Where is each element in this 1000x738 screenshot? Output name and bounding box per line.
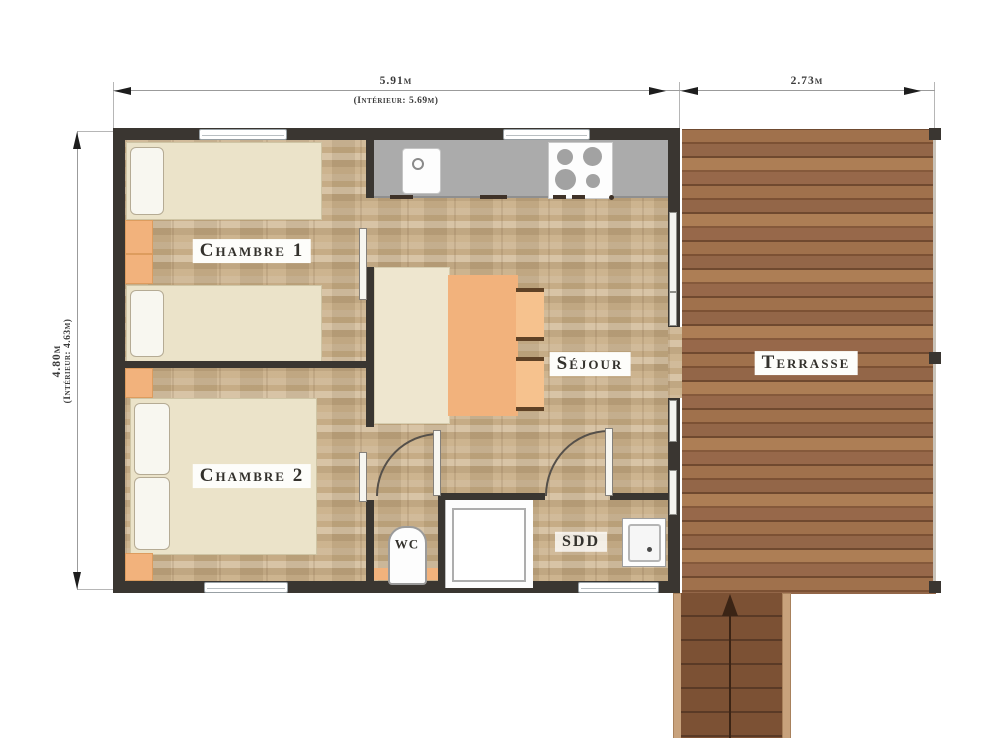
washbasin-bowl bbox=[628, 524, 661, 562]
dimension-left-height: 4.80m bbox=[51, 345, 63, 378]
railing-post bbox=[929, 352, 941, 364]
terrace-doorway-opening bbox=[668, 327, 682, 398]
room-label-chambre2: Chambre 2 bbox=[193, 464, 311, 488]
door-leaf-wc bbox=[433, 430, 441, 496]
floor-plan-canvas: 5.91m (Intérieur: 5.69m) 2.73m 4.80m (In… bbox=[0, 0, 1000, 738]
cabinet-handle bbox=[572, 195, 585, 199]
faucet-icon bbox=[412, 158, 424, 170]
extension-line bbox=[934, 82, 935, 128]
glass-pane bbox=[669, 470, 677, 515]
dimension-line-terrace bbox=[680, 90, 935, 91]
dimension-arrow-icon bbox=[73, 572, 81, 589]
door-leaf-sdd bbox=[605, 428, 613, 496]
burner-icon bbox=[583, 147, 602, 166]
nightstand bbox=[125, 368, 153, 398]
bed-pillow bbox=[130, 290, 164, 357]
partition-bedroom1-kitchen bbox=[366, 140, 374, 198]
dimension-terrace-width: 2.73m bbox=[791, 75, 824, 87]
dimension-arrow-icon bbox=[73, 132, 81, 149]
window bbox=[578, 582, 659, 593]
partition-hall-sdd bbox=[610, 493, 668, 500]
nightstand bbox=[125, 553, 153, 581]
cabinet-handle bbox=[553, 195, 566, 199]
dimension-left-height-group: 4.80m (Intérieur: 4.63m) bbox=[51, 319, 73, 404]
room-label-wc: WC bbox=[395, 538, 419, 553]
window bbox=[204, 582, 288, 593]
dimension-top-width: 5.91m bbox=[380, 75, 413, 87]
shower-tray-inner bbox=[452, 508, 526, 582]
extension-line bbox=[77, 131, 113, 132]
stairs-direction-line bbox=[729, 600, 731, 738]
cabinet-handle bbox=[480, 195, 507, 199]
room-label-sdd: SDD bbox=[555, 532, 607, 552]
room-label-chambre1: Chambre 1 bbox=[193, 239, 311, 263]
railing-post bbox=[929, 581, 941, 593]
nightstand bbox=[125, 220, 153, 254]
bed-pillow bbox=[130, 147, 164, 215]
dimension-line-top-house bbox=[113, 90, 680, 91]
stairs-up-arrow-icon bbox=[722, 594, 738, 616]
railing-post bbox=[929, 128, 941, 140]
door-leaf-chambre2 bbox=[359, 452, 367, 502]
glass-pane bbox=[669, 212, 677, 292]
dining-table bbox=[448, 275, 518, 416]
door-leaf-chambre1 bbox=[359, 228, 367, 300]
bench bbox=[374, 267, 450, 424]
dimension-arrow-icon bbox=[114, 87, 131, 95]
chair bbox=[516, 288, 544, 341]
dimension-left-height-interior: (Intérieur: 4.63m) bbox=[63, 319, 73, 404]
cabinet-handle bbox=[609, 195, 614, 200]
wall-left bbox=[113, 128, 125, 593]
dimension-arrow-icon bbox=[904, 87, 921, 95]
chair bbox=[516, 357, 544, 411]
drain-dot bbox=[647, 547, 652, 552]
dimension-arrow-icon bbox=[681, 87, 698, 95]
partition-wc-left bbox=[366, 500, 374, 581]
burner-icon bbox=[557, 149, 573, 165]
cabinet-handle bbox=[390, 195, 413, 199]
dimension-arrow-icon bbox=[649, 87, 666, 95]
nightstand bbox=[125, 254, 153, 284]
dimension-top-width-interior: (Intérieur: 5.69m) bbox=[354, 96, 439, 106]
stair-stringer bbox=[782, 593, 791, 738]
kitchen-sink-icon bbox=[402, 148, 441, 194]
bed-pillow bbox=[134, 477, 170, 550]
burner-icon bbox=[586, 174, 600, 188]
extension-line bbox=[679, 82, 680, 128]
dimension-line-left-house bbox=[77, 131, 78, 590]
toilet-icon bbox=[388, 526, 427, 585]
partition-bedrooms-sejour bbox=[366, 267, 374, 427]
bed-pillow bbox=[134, 403, 170, 475]
glass-pane bbox=[669, 292, 677, 326]
room-label-sejour: Séjour bbox=[550, 352, 631, 376]
glass-pane bbox=[669, 400, 677, 442]
extension-line bbox=[77, 589, 113, 590]
burner-icon bbox=[555, 169, 576, 190]
room-label-terrasse: Terrasse bbox=[755, 351, 858, 375]
window bbox=[199, 129, 287, 140]
partition-between-bedrooms bbox=[125, 361, 374, 368]
window bbox=[503, 129, 590, 140]
partition-hall-shower bbox=[446, 493, 545, 500]
